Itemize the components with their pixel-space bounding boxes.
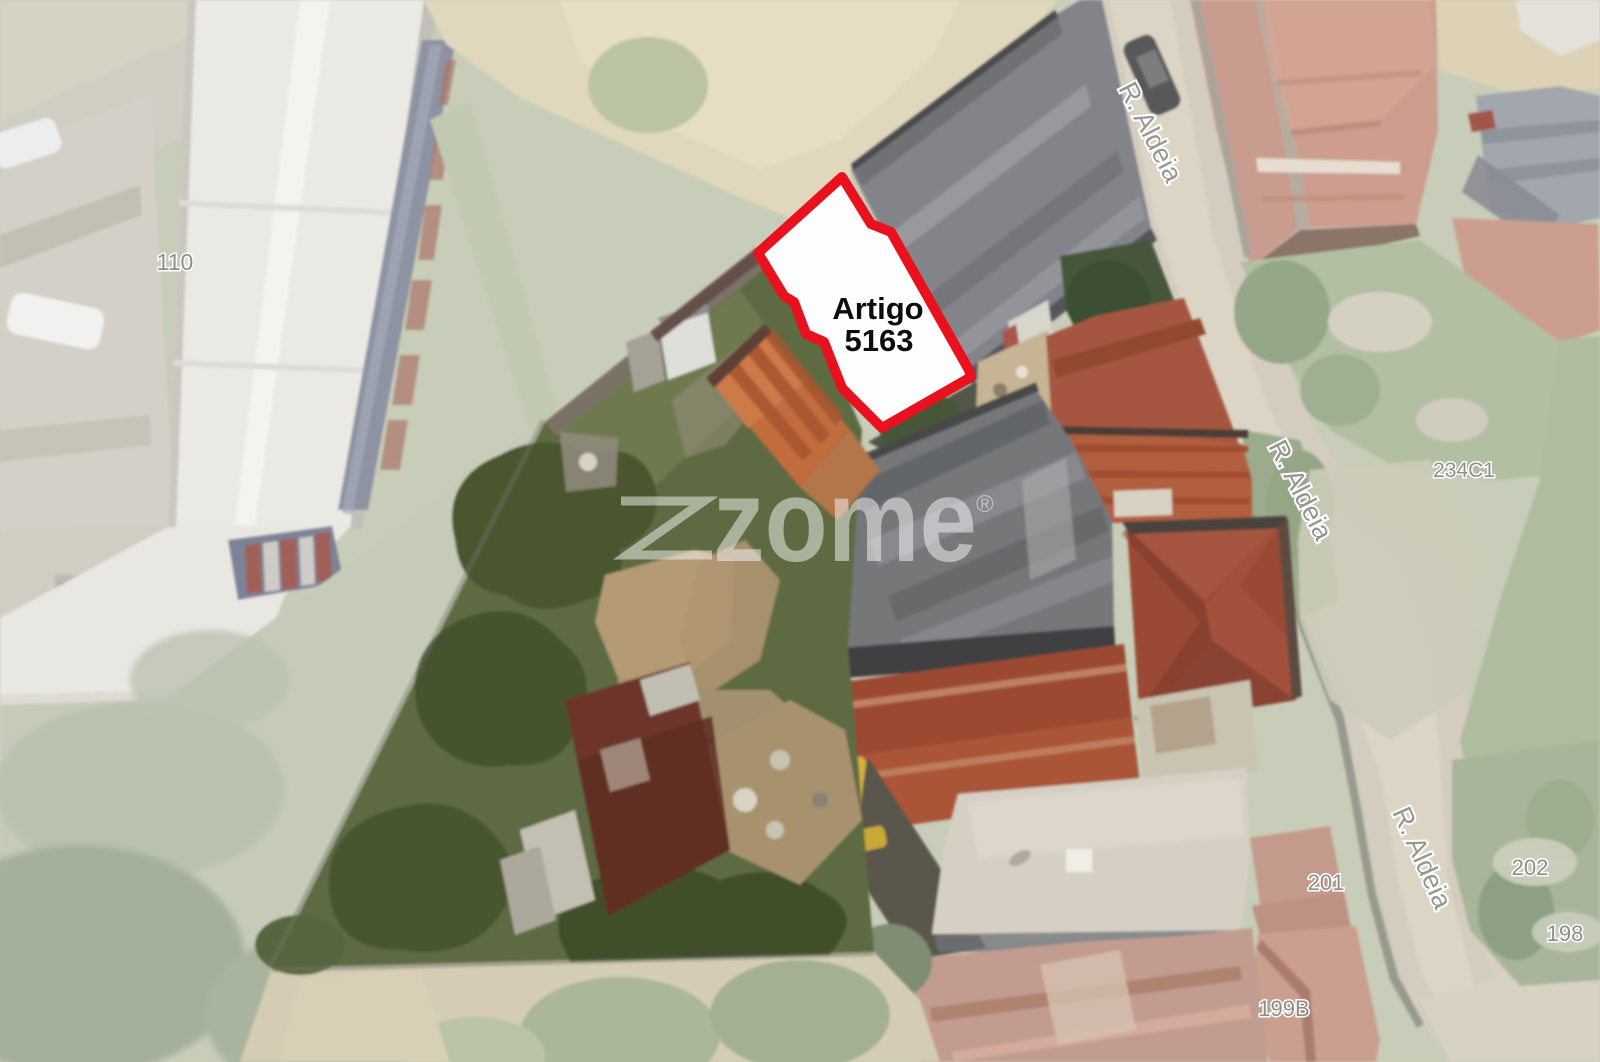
svg-text:234C1: 234C1: [1433, 459, 1495, 482]
svg-text:198: 198: [1547, 921, 1584, 946]
svg-text:®: ®: [976, 491, 994, 518]
svg-text:201: 201: [1308, 870, 1345, 895]
svg-text:199B: 199B: [1258, 996, 1309, 1021]
svg-text:110: 110: [157, 249, 194, 275]
svg-text:Artigo: Artigo: [832, 291, 923, 326]
svg-text:5163: 5163: [845, 323, 914, 358]
svg-text:zome: zome: [713, 455, 977, 587]
svg-text:202: 202: [1512, 855, 1549, 880]
